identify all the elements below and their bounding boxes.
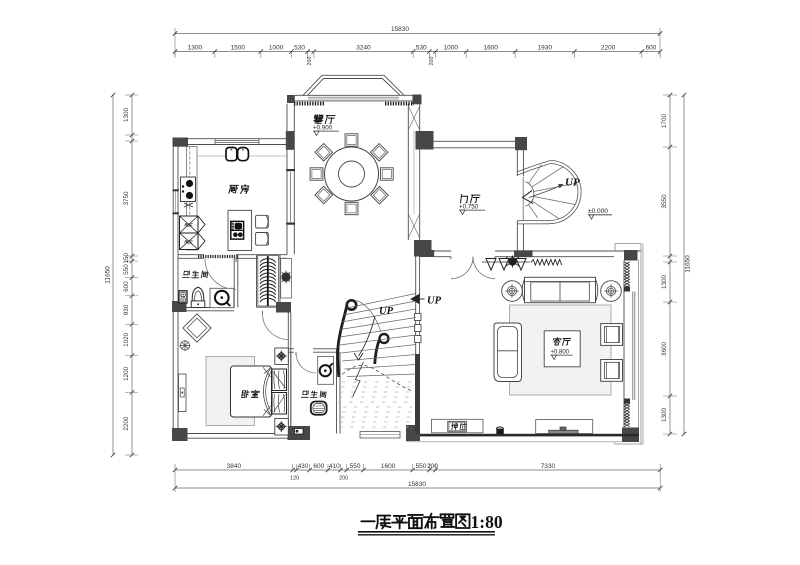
svg-text:7330: 7330: [541, 463, 556, 470]
svg-text:550: 550: [123, 264, 130, 275]
svg-text:15830: 15830: [408, 481, 426, 488]
svg-text:1600: 1600: [381, 463, 396, 470]
svg-text:3750: 3750: [123, 191, 130, 206]
svg-text:1300: 1300: [661, 275, 668, 290]
svg-text:UP: UP: [379, 306, 394, 317]
svg-text:±0.000: ±0.000: [588, 208, 608, 215]
svg-text:3600: 3600: [661, 342, 668, 357]
svg-text:120: 120: [290, 476, 299, 482]
svg-text:1300: 1300: [123, 108, 130, 123]
svg-text:430: 430: [298, 463, 309, 470]
svg-text:530: 530: [294, 45, 305, 52]
svg-text:200: 200: [339, 476, 348, 482]
svg-text:600: 600: [646, 45, 657, 52]
svg-text:200: 200: [307, 57, 313, 66]
svg-text:530: 530: [416, 45, 427, 52]
svg-text:550: 550: [350, 463, 361, 470]
svg-text:200: 200: [429, 57, 435, 66]
svg-text:+0.800: +0.800: [551, 350, 570, 356]
svg-text:1300: 1300: [661, 408, 668, 423]
svg-text:600: 600: [313, 463, 324, 470]
svg-text:3240: 3240: [356, 45, 371, 52]
svg-text:410: 410: [329, 463, 340, 470]
svg-text:1000: 1000: [444, 45, 459, 52]
svg-text:+0.900: +0.900: [313, 125, 333, 132]
svg-text:1500: 1500: [231, 45, 246, 52]
svg-text:2200: 2200: [123, 416, 130, 431]
svg-text:930: 930: [123, 304, 130, 315]
svg-text:2200: 2200: [601, 45, 616, 52]
svg-text:REF: REF: [184, 240, 193, 245]
svg-text:1600: 1600: [483, 45, 498, 52]
svg-text:1020: 1020: [123, 332, 130, 347]
svg-text:UP: UP: [565, 177, 580, 189]
svg-text:1:80: 1:80: [471, 512, 503, 532]
svg-text:UP: UP: [427, 296, 442, 307]
svg-text:150: 150: [123, 252, 130, 263]
svg-text:3840: 3840: [227, 463, 242, 470]
svg-text:1930: 1930: [538, 45, 553, 52]
svg-text:+0.750: +0.750: [459, 204, 479, 211]
svg-text:1700: 1700: [661, 114, 668, 129]
svg-text:15830: 15830: [391, 26, 409, 33]
svg-text:REF: REF: [184, 223, 193, 228]
svg-text:1200: 1200: [123, 366, 130, 381]
svg-text:600: 600: [123, 281, 130, 292]
svg-text:200: 200: [427, 463, 438, 470]
svg-text:3550: 3550: [661, 194, 668, 209]
svg-text:1300: 1300: [188, 45, 203, 52]
svg-text:1000: 1000: [269, 45, 284, 52]
svg-text:11650: 11650: [105, 266, 112, 284]
svg-text:550: 550: [416, 463, 427, 470]
svg-text:11650: 11650: [685, 255, 692, 273]
